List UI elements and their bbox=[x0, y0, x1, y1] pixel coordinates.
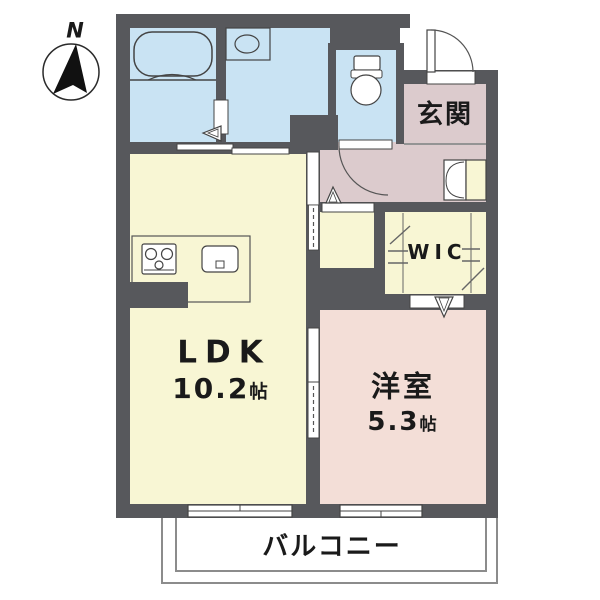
bathroom-floor bbox=[130, 28, 216, 142]
wall-left bbox=[116, 14, 130, 518]
wall-toilet-entrance bbox=[396, 43, 404, 144]
wall-closet-wic bbox=[374, 202, 385, 294]
entrance-door-leaf bbox=[427, 30, 435, 72]
window-icon-right bbox=[340, 505, 422, 517]
shoe-cabinet-doors bbox=[444, 160, 466, 200]
western-room-label: 洋室 bbox=[371, 373, 435, 402]
western-room-area-label: 5.3帖 bbox=[367, 409, 438, 435]
ldk-area-unit: 帖 bbox=[249, 382, 269, 403]
wall-top bbox=[116, 14, 410, 28]
toilet-bowl bbox=[351, 75, 381, 105]
toilet-tank bbox=[354, 56, 380, 70]
wall-kitchen-stub bbox=[130, 282, 188, 308]
ldk-doorway bbox=[307, 152, 319, 205]
stove-icon bbox=[142, 244, 176, 274]
floor-plan-drawing bbox=[0, 0, 600, 600]
wall-top-block bbox=[330, 28, 400, 50]
window-icon-left bbox=[188, 505, 292, 517]
sliding-door-icon bbox=[177, 144, 233, 150]
western-room-area-value: 5.3 bbox=[367, 407, 419, 437]
compass-needle bbox=[53, 44, 87, 94]
balcony-label: バルコニー bbox=[262, 534, 401, 560]
ldk-floor bbox=[130, 154, 308, 504]
western-room-area-unit: 帖 bbox=[419, 415, 438, 435]
ldk-area-value: 10.2 bbox=[172, 372, 249, 405]
toilet-doorway bbox=[339, 140, 392, 149]
entrance-doorway bbox=[427, 71, 475, 84]
wall-bottom bbox=[116, 504, 486, 518]
wall-right bbox=[486, 70, 498, 518]
ldk-label: LDK bbox=[177, 338, 271, 369]
wic-label: WIC bbox=[407, 242, 466, 262]
kitchen-sink-icon bbox=[202, 246, 238, 272]
closet-floor bbox=[318, 203, 374, 268]
sliding-door-icon-2 bbox=[232, 148, 289, 154]
shoe-cabinet-icon bbox=[444, 160, 486, 200]
entrance-label: 玄関 bbox=[417, 102, 473, 128]
ldk-area-label: 10.2帖 bbox=[172, 375, 270, 403]
compass-north-label: N bbox=[66, 21, 84, 42]
toilet-icon bbox=[351, 56, 382, 105]
closet-doorway bbox=[322, 203, 374, 212]
door-swing-icon bbox=[431, 30, 473, 72]
shoe-cabinet-body bbox=[466, 160, 486, 200]
floor-plan: N 玄関 WIC LDK 10.2帖 洋室 5.3帖 バルコニー bbox=[0, 0, 600, 600]
compass-north-icon bbox=[43, 44, 99, 100]
